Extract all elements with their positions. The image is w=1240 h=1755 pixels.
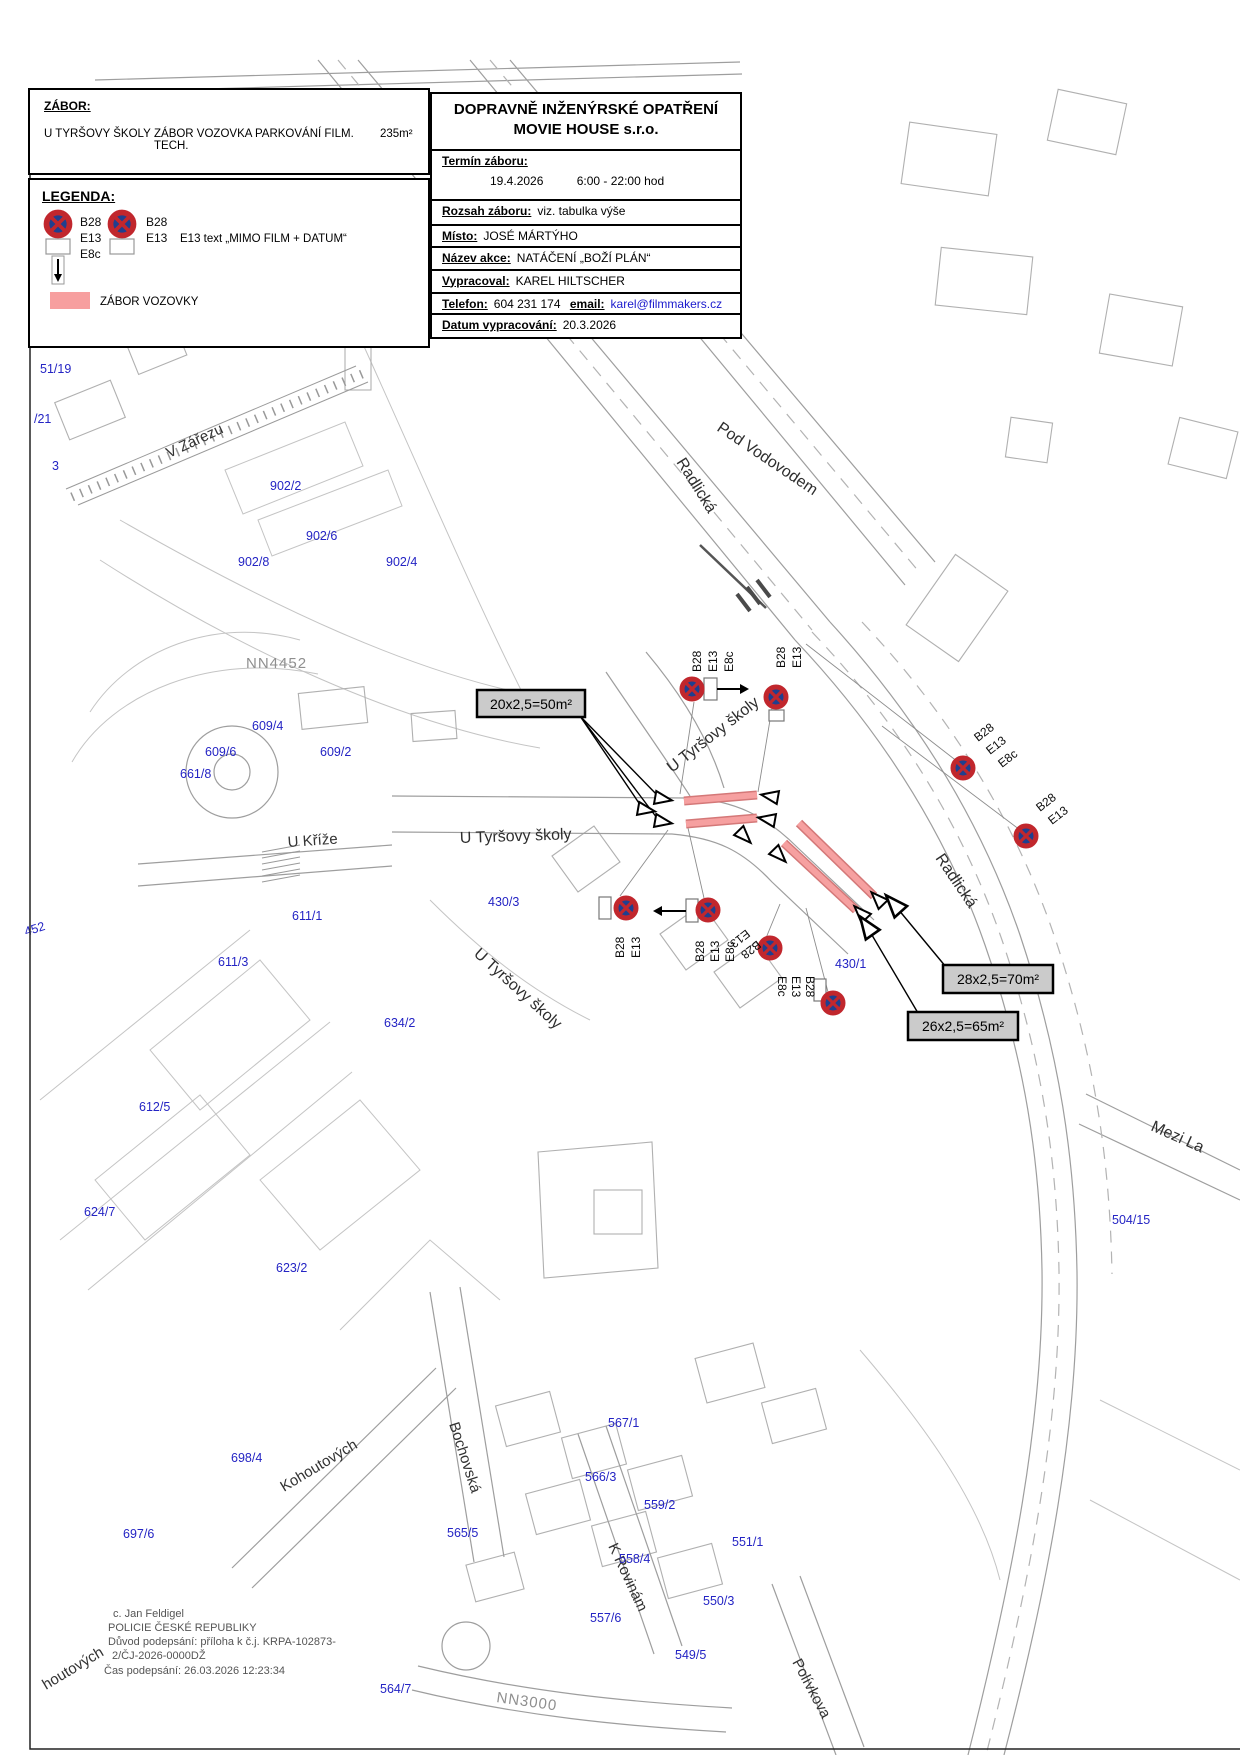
b28-sign-icon <box>1016 826 1036 846</box>
zone-dimension-callout: 20x2,5=50m² <box>477 690 585 717</box>
title-row-termin: Termín záboru: 19.4.2026 6:00 - 22:00 ho… <box>432 149 740 200</box>
sign-code-label: E13 <box>789 976 803 998</box>
parcel-label: 609/6 <box>205 745 236 759</box>
zabor-description: ZÁBOR VOZOVKA PARKOVÁNÍ FILM. TECH. <box>154 128 380 152</box>
parcel-label: 634/2 <box>384 1016 415 1030</box>
zone-dimension-label: 28x2,5=70m² <box>957 971 1039 987</box>
zone-arrowhead-icon <box>734 826 755 847</box>
email-link[interactable]: karel@filmmakers.cz <box>611 297 723 311</box>
e13-plate <box>704 678 717 700</box>
traffic-sign-cluster: B28 E13 E8c <box>953 720 1020 778</box>
zone-stripe <box>686 818 757 824</box>
telefon-label: Telefon: <box>442 297 488 311</box>
title-block: DOPRAVNĚ INŽENÝRSKÉ OPATŘENÍ MOVIE HOUSE… <box>430 92 742 339</box>
termin-date: 19.4.2026 <box>490 174 543 188</box>
zone-dimension-label: 26x2,5=65m² <box>922 1018 1004 1034</box>
zone-arrowhead-icon <box>654 791 673 807</box>
title-row-vypracoval: Vypracoval:KAREL HILTSCHER <box>432 269 740 293</box>
street-label: U Tyršovy školy <box>460 826 572 847</box>
parcel-label: 551/1 <box>732 1535 763 1549</box>
sign-code-label: E13 <box>706 650 720 672</box>
misto-value: JOSÉ MÁRTÝHO <box>483 229 577 243</box>
sign-code-label: B28 <box>774 646 788 668</box>
parcel-label: 3 <box>52 459 59 473</box>
b28-sign-icon <box>616 898 636 918</box>
zone-arrowhead-icon <box>867 888 888 909</box>
e13-plate <box>599 897 611 919</box>
parcel-label: 611/3 <box>218 955 248 969</box>
vypracoval-value: KAREL HILTSCHER <box>516 274 625 288</box>
legend-zone-label: ZÁBOR VOZOVKY <box>100 295 199 308</box>
parcel-label: /21 <box>34 412 51 426</box>
e8c-arrow-icon <box>740 684 749 694</box>
vypracoval-label: Vypracoval: <box>442 274 510 288</box>
parcel-label: 452 <box>23 919 47 939</box>
parcel-label: 567/1 <box>608 1416 639 1430</box>
termin-time: 6:00 - 22:00 hod <box>577 174 664 188</box>
parcel-label: 624/7 <box>84 1205 115 1219</box>
misto-label: Místo: <box>442 229 477 243</box>
parcel-label: 564/7 <box>380 1682 411 1696</box>
parcel-label: 557/6 <box>590 1611 621 1625</box>
street-label: U Tyršovy školy <box>664 694 763 776</box>
parcel-label: 504/15 <box>1112 1213 1150 1227</box>
sign-code-label: B28 <box>803 976 817 998</box>
sign-code-label: E13 <box>708 940 722 962</box>
parcel-label: 902/2 <box>270 479 301 493</box>
parcel-label: 902/8 <box>238 555 269 569</box>
zone-arrowhead-icon <box>757 811 776 827</box>
email-label: email: <box>570 297 605 311</box>
street-label: houtových <box>39 1644 106 1694</box>
b28-sign-icon <box>953 758 973 778</box>
parcel-label: 609/4 <box>252 719 283 733</box>
doc-title: DOPRAVNĚ INŽENÝRSKÉ OPATŘENÍ MOVIE HOUSE… <box>432 94 740 149</box>
zone-dimension-label: 20x2,5=50m² <box>490 696 572 712</box>
parcel-label: 430/1 <box>835 957 866 971</box>
traffic-plan-page: 20x2,5=50m² 28x2,5=70m² 26x2,5=65m² B28 … <box>0 0 1240 1755</box>
b28-sign-icon <box>682 679 702 699</box>
title-row-datum: Datum vypracování:20.3.2026 <box>432 313 740 337</box>
b28-sign-icon <box>47 213 70 236</box>
legend-item-label: B28 <box>146 215 168 229</box>
rozsah-value: viz. tabulka výše <box>537 204 625 218</box>
title-row-rozsah: Rozsah záboru:viz. tabulka výše <box>432 199 740 224</box>
traffic-sign-cluster: B28 E13 E8c <box>775 976 843 1013</box>
e13-plate <box>769 710 784 721</box>
b28-sign-icon <box>698 900 718 920</box>
zone-arrowhead-icon <box>654 814 673 830</box>
traffic-sign-cluster: B28 E13 <box>599 897 643 958</box>
sign-code-label: E8c <box>722 651 736 672</box>
traffic-sign-cluster: B28 E13 <box>1016 790 1071 846</box>
title-row-misto: Místo:JOSÉ MÁRTÝHO <box>432 224 740 246</box>
parcel-label: 661/8 <box>180 767 211 781</box>
sign-code-label: B28 <box>613 936 627 958</box>
e13-plate <box>110 239 134 254</box>
zabor-area: 235m² <box>380 128 422 152</box>
b28-sign-icon <box>823 993 843 1013</box>
traffic-sign-cluster: B28 E13 <box>766 646 804 721</box>
street-label: Radlická <box>673 455 720 516</box>
parcel-label: 611/1 <box>292 909 322 923</box>
street-label: Radlická <box>932 851 980 911</box>
e8c-arrow-icon <box>52 256 64 284</box>
rozsah-label: Rozsah záboru: <box>442 204 531 218</box>
street-label: Mezi La <box>1148 1118 1206 1156</box>
zone-dimension-callout: 26x2,5=65m² <box>908 1012 1018 1040</box>
street-label: U Tyršovy školy <box>470 945 564 1032</box>
zabor-heading: ZÁBOR: <box>44 99 91 113</box>
b28-sign-icon <box>111 213 134 236</box>
datum-label: Datum vypracování: <box>442 318 557 332</box>
street-label: Polívkova <box>788 1656 834 1722</box>
parcel-label: 697/6 <box>123 1527 154 1541</box>
signature-line: POLICIE ČESKÉ REPUBLIKY <box>108 1621 257 1634</box>
legend-item-note: E13 text „MIMO FILM + DATUM“ <box>180 233 347 245</box>
zabor-place: U TYRŠOVY ŠKOLY <box>44 128 154 152</box>
street-label: Kohoutových <box>277 1436 360 1495</box>
legend-box: LEGENDA: B28 E13 E8c B28 E13 E13 text „M… <box>28 178 430 348</box>
legend-item-label: E8c <box>80 247 101 261</box>
termin-label: Termín záboru: <box>442 154 528 168</box>
parcel-label: 51/19 <box>40 362 71 376</box>
parcel-label: 902/4 <box>386 555 417 569</box>
parcel-label: 430/3 <box>488 895 519 909</box>
parcel-label: 698/4 <box>231 1451 262 1465</box>
parcel-label: 612/5 <box>139 1100 170 1114</box>
legend-item-label: B28 <box>80 215 102 229</box>
zone-stripe <box>684 795 757 801</box>
parcel-label: 558/4 <box>619 1552 650 1566</box>
street-label: Bochovská <box>445 1420 484 1496</box>
sign-code-label: B28 <box>690 650 704 672</box>
title-row-telefon: Telefon:604 231 174 email:karel@filmmake… <box>432 292 740 313</box>
e8c-arrow-icon <box>653 906 662 916</box>
b28-sign-icon <box>766 687 786 707</box>
zone-arrowheads <box>637 788 907 939</box>
signature-line: Důvod podepsání: příloha k č.j. KRPA-102… <box>108 1636 336 1648</box>
sign-code-label: E8c <box>775 976 789 997</box>
signature-line: Čas podepsání: 26.03.2026 12:23:34 <box>104 1664 285 1677</box>
street-label: NN4452 <box>246 655 307 672</box>
street-label: Pod Vodovodem <box>714 419 821 499</box>
street-label: U Kříže <box>287 831 338 851</box>
zabor-box: ZÁBOR: U TYRŠOVY ŠKOLY ZÁBOR VOZOVKA PAR… <box>28 88 430 175</box>
signature-line: 2/ČJ-2026-0000DŽ <box>112 1649 206 1662</box>
parcel-label: 549/5 <box>675 1648 706 1662</box>
parcel-label: 623/2 <box>276 1261 307 1275</box>
e13-plate <box>46 239 70 254</box>
legend-item-label: E13 <box>80 231 102 245</box>
parcel-label: 902/6 <box>306 529 337 543</box>
signature-block: c. Jan Feldigel POLICIE ČESKÉ REPUBLIKY … <box>104 1608 336 1677</box>
nazev-value: NATÁČENÍ „BOŽÍ PLÁN“ <box>517 251 651 265</box>
zone-dimension-callout: 28x2,5=70m² <box>943 965 1053 993</box>
zabor-row: U TYRŠOVY ŠKOLY ZÁBOR VOZOVKA PARKOVÁNÍ … <box>44 128 422 152</box>
nazev-label: Název akce: <box>442 251 511 265</box>
sign-code-label: E13 <box>629 936 643 958</box>
doc-title-line1: DOPRAVNĚ INŽENÝRSKÉ OPATŘENÍ <box>432 100 740 120</box>
street-labels: V Zářezu Radlická Pod Vodovodem U Tyršov… <box>39 419 1206 1722</box>
traffic-sign-cluster: B28 E13 E8c <box>682 650 749 700</box>
doc-title-line2: MOVIE HOUSE s.r.o. <box>432 120 740 140</box>
sign-code-label: E13 <box>790 646 804 668</box>
legend-item-label: E13 <box>146 231 168 245</box>
sign-code-label: B28 <box>693 940 707 962</box>
parcel-label: 559/2 <box>644 1498 675 1512</box>
zone-stripe <box>784 843 856 910</box>
parcel-label: 550/3 <box>703 1594 734 1608</box>
telefon-value: 604 231 174 <box>494 297 561 311</box>
datum-value: 20.3.2026 <box>563 318 616 332</box>
parcel-label: 565/5 <box>447 1526 478 1540</box>
signature-line: c. Jan Feldigel <box>113 1608 184 1620</box>
zone-arrowhead-icon <box>760 788 779 804</box>
title-row-nazev: Název akce:NATÁČENÍ „BOŽÍ PLÁN“ <box>432 246 740 269</box>
parcel-label: 609/2 <box>320 745 351 759</box>
legend-symbols: B28 E13 E8c B28 E13 E13 text „MIMO FILM … <box>30 180 428 346</box>
parcel-label: 566/3 <box>585 1470 616 1484</box>
zone-swatch <box>50 292 90 309</box>
street-label: NN3000 <box>495 1689 558 1714</box>
